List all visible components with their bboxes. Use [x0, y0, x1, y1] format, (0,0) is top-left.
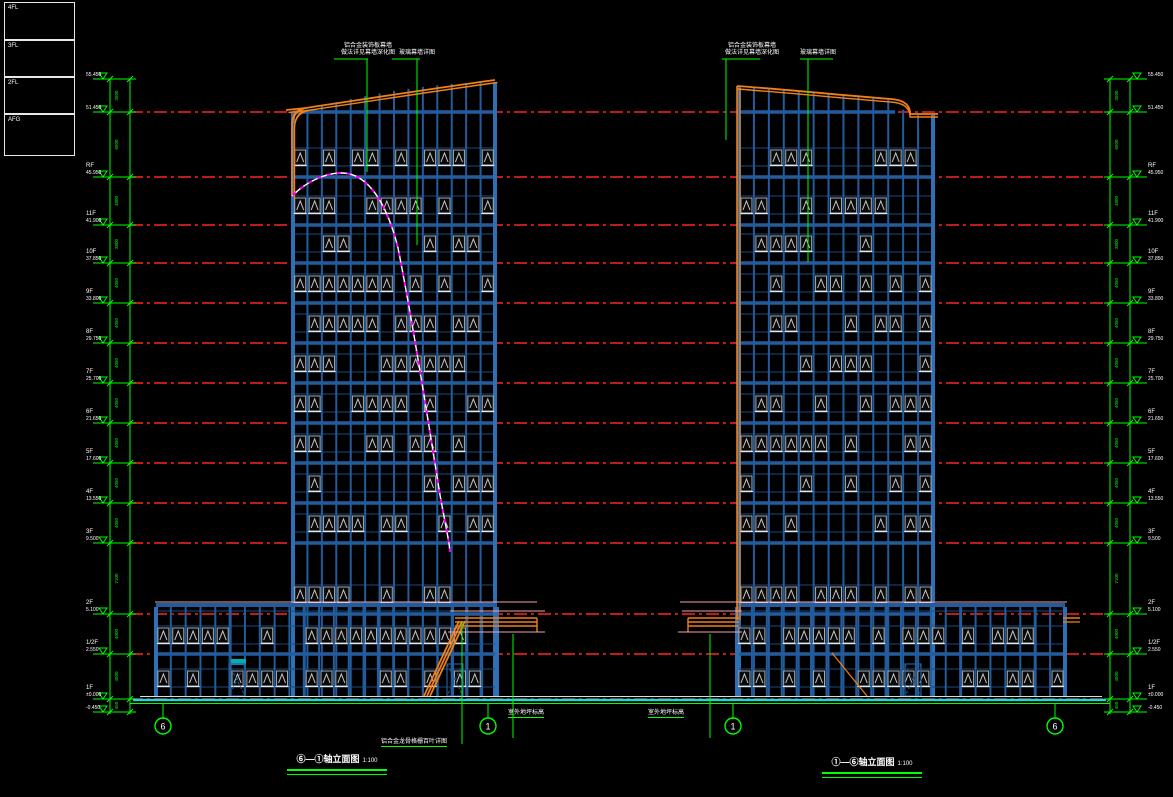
drawing-title-left-scale: 1:100	[363, 758, 378, 764]
dim-value-text: 6500	[114, 139, 119, 150]
level-label-8F: 8F29.750	[86, 329, 101, 343]
dim-value-text: 4500	[114, 671, 119, 682]
grille-note: 铝合金龙骨格栅百叶详图	[381, 736, 447, 747]
grid-bubble-label: 6	[160, 722, 165, 732]
level-label-5F: 5F17.600	[86, 449, 101, 463]
drawing-title-right-scale: 1:100	[898, 761, 913, 767]
dim-value-text: 4050	[114, 317, 119, 328]
dim-value-text: 4050	[1114, 357, 1119, 368]
dim-value-text: 6500	[1114, 139, 1119, 150]
dim-value-text: 4050	[114, 517, 119, 528]
level-marker-triangle	[1133, 648, 1141, 654]
ground-note-right-text: 室外地坪标高	[648, 710, 684, 716]
grid-bubble-label: 1	[485, 722, 490, 732]
layout-box-4-label: AFG	[8, 117, 20, 123]
level-marker-triangle	[1133, 219, 1141, 225]
level-marker-triangle	[1133, 257, 1141, 263]
level-marker-triangle	[1133, 693, 1141, 699]
grille-note-text: 铝合金龙骨格栅百叶详图	[381, 739, 447, 745]
dim-value-text: 4050	[114, 357, 119, 368]
annotation-right-panel-line2: 做法详见幕墙深化图	[706, 50, 798, 57]
level-label-10F: 10F37.850	[86, 249, 101, 263]
level-label-1F: 1F±0.000	[86, 685, 101, 699]
level-marker-triangle	[1133, 417, 1141, 423]
level-label-4F: 4F13.550	[86, 489, 101, 503]
annotation-left-glass: 玻璃幕墙详图	[385, 50, 449, 57]
level-marker-triangle	[99, 648, 107, 654]
grid-bubble-label: 1	[730, 722, 735, 732]
dim-value-text: 3800	[114, 238, 119, 249]
layout-box-1[interactable]: 4FL	[4, 2, 75, 40]
level-label-51.450: 51.450	[1148, 98, 1168, 112]
dim-value-text: 4000	[1114, 628, 1119, 639]
dim-value-text: 4800	[1114, 195, 1119, 206]
level-marker-triangle	[1133, 497, 1141, 503]
level-label-7F: 7F25.700	[86, 369, 101, 383]
annotation-right-panel: 铝合金装饰板幕墙 做法详见幕墙深化图	[706, 43, 798, 57]
dim-value-text: 4050	[1114, 317, 1119, 328]
grid-bubble-label: 6	[1052, 722, 1057, 732]
level-label-RF: RF45.950	[1148, 163, 1168, 177]
annotation-right-panel-line1: 铝合金装饰板幕墙	[706, 43, 798, 50]
dim-value-text: 4800	[114, 195, 119, 206]
ground-note-left-text: 室外地坪标高	[508, 710, 544, 716]
level-label-1F: 1F±0.000	[1148, 685, 1168, 699]
drawing-title-left-text: ⑥—①轴立面图	[296, 754, 359, 764]
level-marker-triangle	[99, 608, 107, 614]
dim-value-text: 7100	[1114, 573, 1119, 584]
dim-value-text: 4000	[114, 628, 119, 639]
dim-value-text: 7100	[114, 573, 119, 584]
level-label--0.450: -0.450	[86, 698, 100, 712]
level-label-10F: 10F37.850	[1148, 249, 1168, 263]
layout-box-3[interactable]: 2FL	[4, 77, 75, 114]
level-label-1/2F: 1/2F2.550	[86, 640, 99, 654]
level-label-RF: RF45.950	[86, 163, 101, 177]
level-marker-triangle	[1133, 608, 1141, 614]
level-marker-triangle	[99, 706, 107, 712]
level-label-3F: 3F9.500	[86, 529, 99, 543]
level-label-11F: 11F41.900	[1148, 211, 1168, 225]
level-marker-triangle	[1133, 377, 1141, 383]
annotation-right-glass-line: 玻璃幕墙详图	[786, 50, 850, 57]
ground-note-right: 室外地坪标高	[648, 707, 684, 718]
level-label-55.450: 55.450	[86, 65, 101, 79]
dim-value-text: 3500	[1114, 90, 1119, 101]
dim-value-text: 4050	[1114, 397, 1119, 408]
dim-value-text: 4050	[1114, 477, 1119, 488]
level-label-3F: 3F9.500	[1148, 529, 1168, 543]
level-marker-triangle	[1133, 457, 1141, 463]
dim-value-text: 4050	[114, 277, 119, 288]
level-label-6F: 6F21.650	[86, 409, 101, 423]
level-marker-triangle	[1133, 537, 1141, 543]
level-label-55.450: 55.450	[1148, 65, 1168, 79]
level-label--0.450: -0.450	[1148, 698, 1168, 712]
level-label-11F: 11F41.900	[86, 211, 101, 225]
annotation-left-glass-line: 玻璃幕墙详图	[385, 50, 449, 57]
level-marker-triangle	[1133, 171, 1141, 177]
cad-elevation-canvas: 3500650048003800405040504050405040504050…	[0, 0, 1173, 797]
layout-box-4[interactable]: AFG	[4, 114, 75, 156]
layout-box-1-label: 4FL	[8, 5, 18, 11]
level-label-9F: 9F33.800	[1148, 289, 1168, 303]
level-label-4F: 4F13.550	[1148, 489, 1168, 503]
layout-box-3-label: 2FL	[8, 80, 18, 86]
level-label-6F: 6F21.650	[1148, 409, 1168, 423]
dim-value-text: 4050	[1114, 277, 1119, 288]
level-marker-triangle	[1133, 106, 1141, 112]
dim-value-text: 4050	[114, 397, 119, 408]
level-label-8F: 8F29.750	[1148, 329, 1168, 343]
dim-value-text: 450	[1114, 701, 1119, 709]
dim-value-text: 3500	[114, 90, 119, 101]
dim-value-text: 3800	[1114, 238, 1119, 249]
drawing-title-left-underline	[287, 769, 387, 775]
level-marker-triangle	[99, 537, 107, 543]
level-marker-triangle	[1133, 706, 1141, 712]
level-label-1/2F: 1/2F2.550	[1148, 640, 1168, 654]
drawing-title-right: ①—⑥轴立面图1:100	[822, 752, 922, 778]
drawing-title-right-text: ①—⑥轴立面图	[831, 757, 894, 767]
dim-value-text: 4050	[114, 437, 119, 448]
level-label-2F: 2F5.100	[1148, 600, 1168, 614]
level-label-51.450: 51.450	[86, 98, 101, 112]
dim-value-text: 450	[114, 701, 119, 709]
dim-value-text: 4050	[114, 477, 119, 488]
layout-box-2[interactable]: 3FL	[4, 40, 75, 77]
level-marker-triangle	[1133, 73, 1141, 79]
dim-value-text: 4050	[1114, 437, 1119, 448]
elevation-linework: 3500650048003800405040504050405040504050…	[0, 0, 1173, 797]
dim-value-text: 4050	[1114, 517, 1119, 528]
drawing-title-right-underline	[822, 772, 922, 778]
ground-note-left: 室外地坪标高	[508, 707, 544, 718]
level-marker-triangle	[1133, 297, 1141, 303]
level-label-5F: 5F17.600	[1148, 449, 1168, 463]
annotation-right-glass: 玻璃幕墙详图	[786, 50, 850, 57]
level-label-7F: 7F25.700	[1148, 369, 1168, 383]
level-marker-triangle	[1133, 337, 1141, 343]
level-label-2F: 2F5.100	[86, 600, 99, 614]
level-label-9F: 9F33.800	[86, 289, 101, 303]
annotation-left-panel-line1: 铝合金装饰板幕墙	[322, 43, 414, 50]
drawing-title-left: ⑥—①轴立面图1:100	[287, 749, 387, 775]
dim-value-text: 4500	[1114, 671, 1119, 682]
layout-box-2-label: 3FL	[8, 43, 18, 49]
